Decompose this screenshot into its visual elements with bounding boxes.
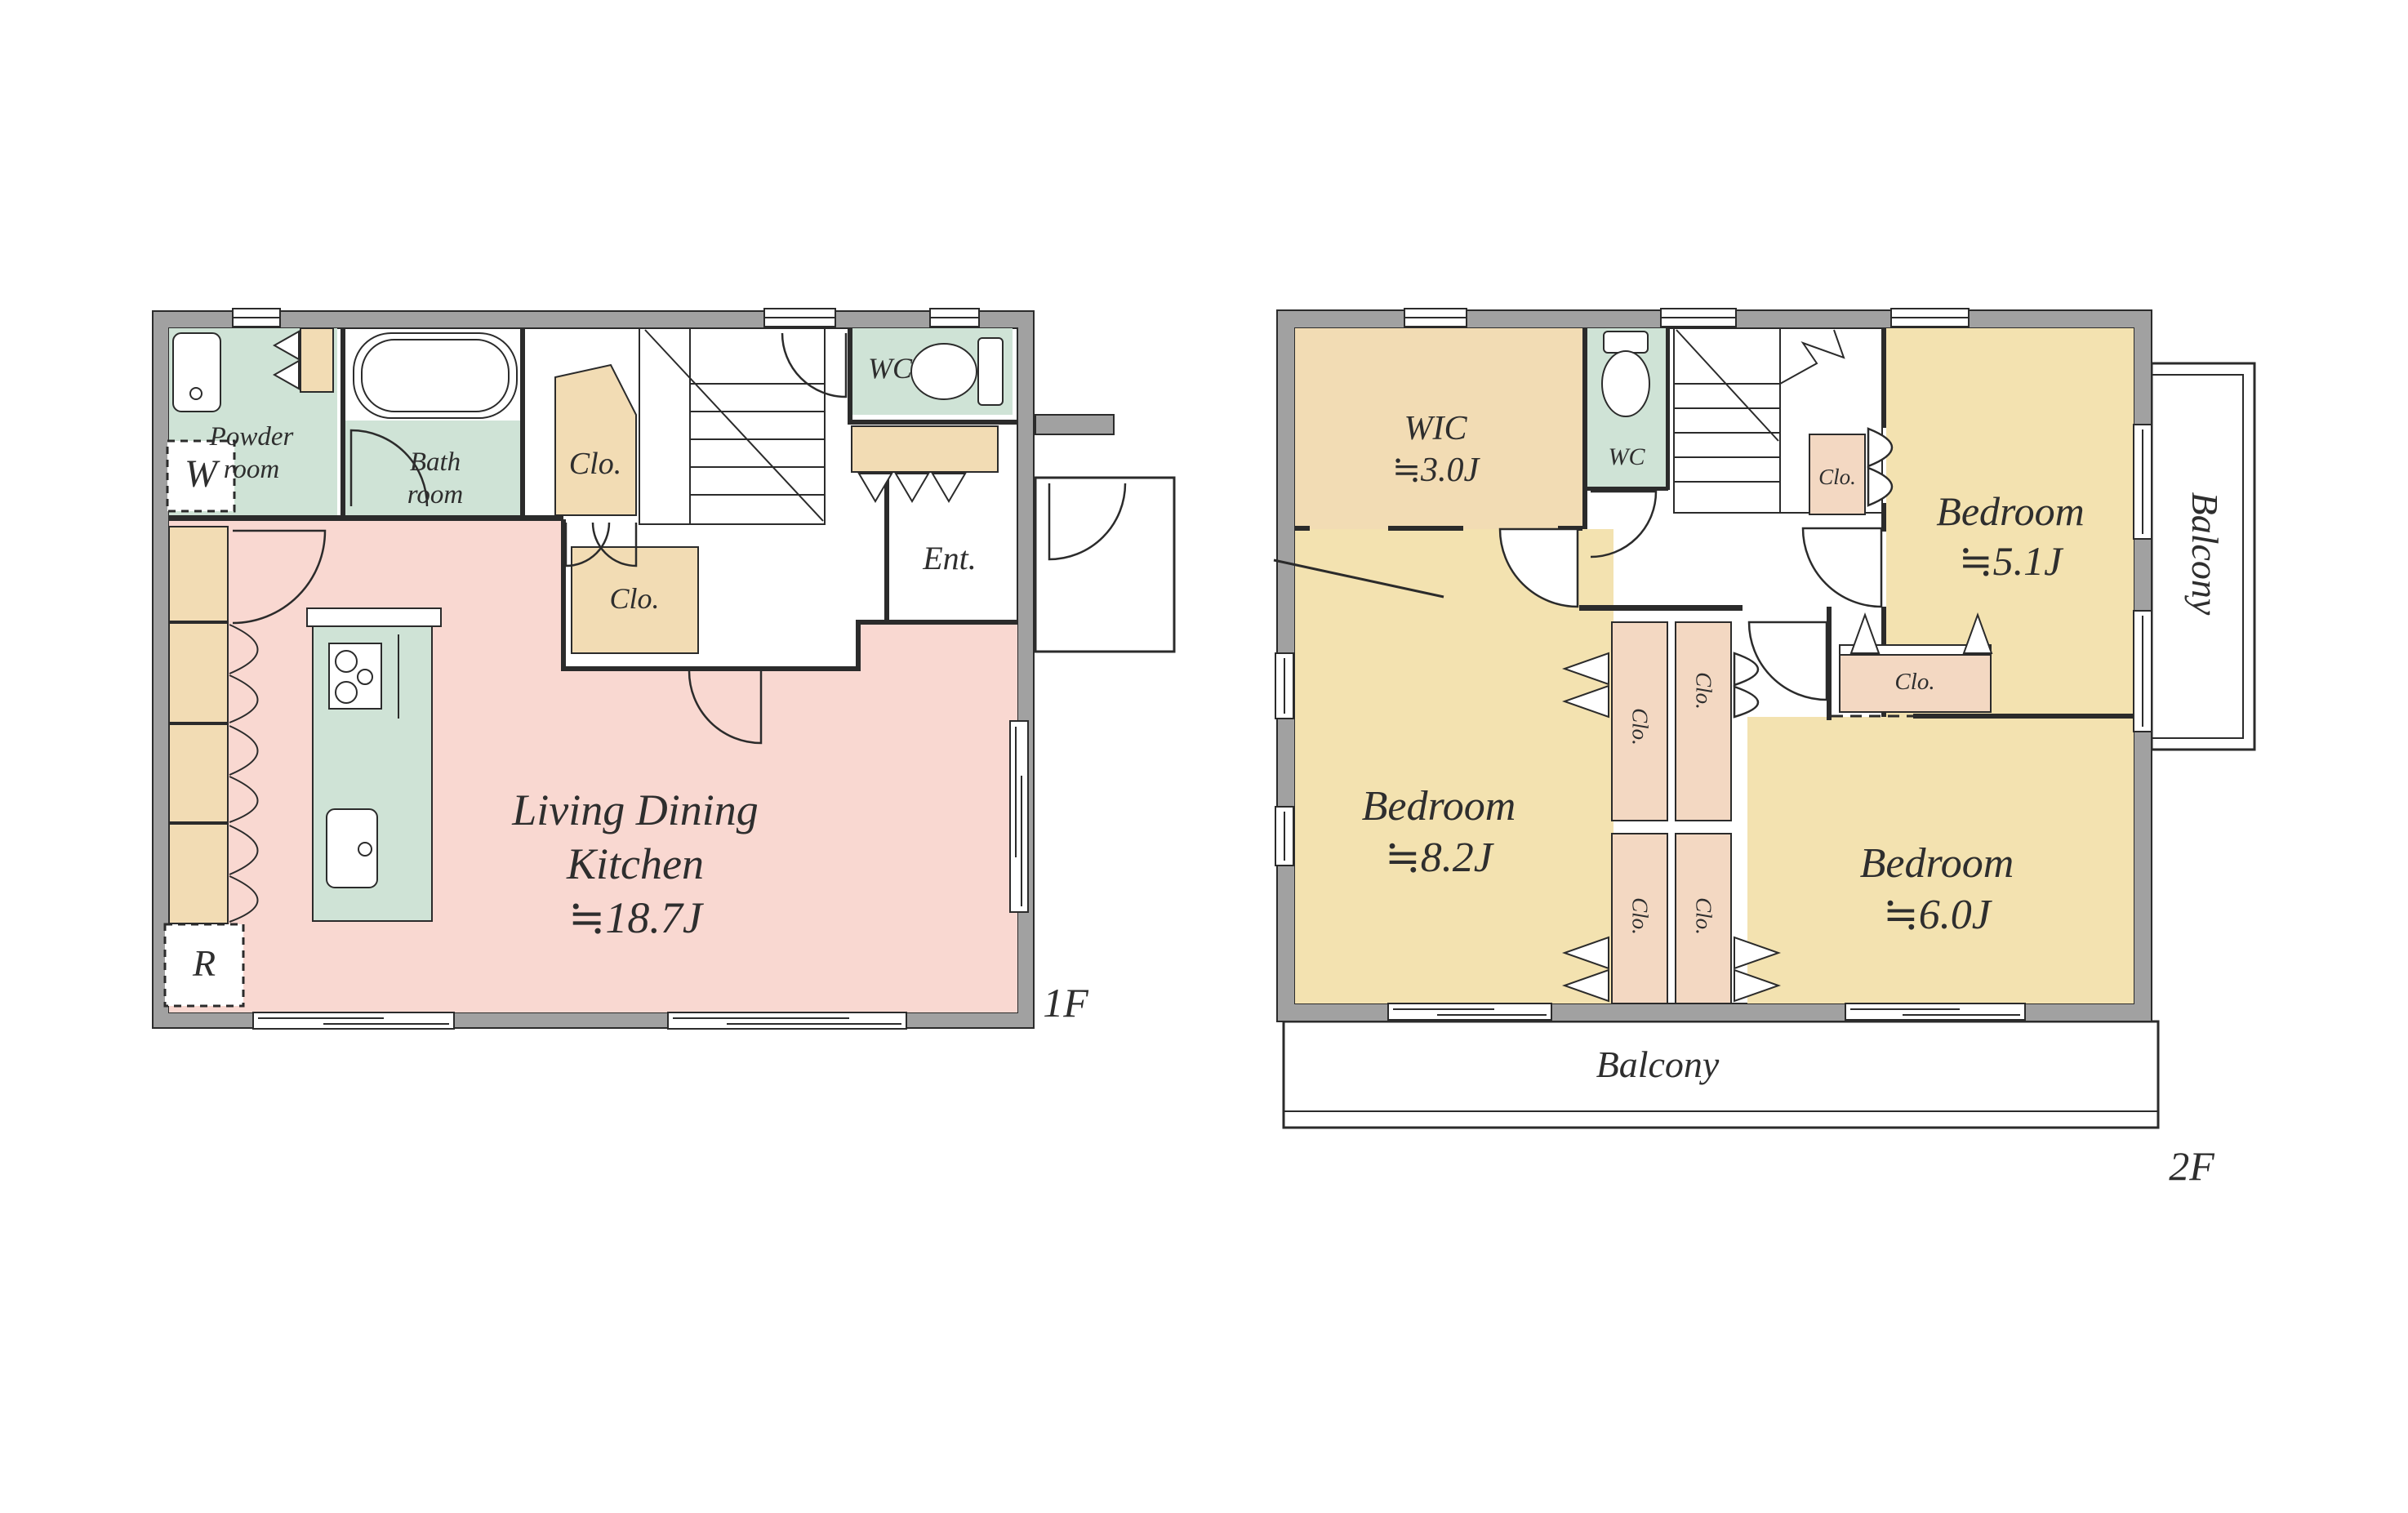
wic-line1: WIC bbox=[1392, 408, 1479, 450]
wall bbox=[848, 420, 1017, 425]
wic-size: ≒3.0J bbox=[1392, 450, 1479, 492]
wall bbox=[1388, 526, 1463, 531]
bedroom-6-0-size: ≒6.0J bbox=[1860, 889, 2014, 941]
bathtub-icon bbox=[354, 333, 517, 418]
sliding-window bbox=[1010, 721, 1028, 912]
kitchen-sink-icon bbox=[327, 809, 377, 888]
wall bbox=[856, 620, 1017, 625]
closet-strip-right-top-label: Clo. bbox=[1690, 672, 1717, 710]
washing-machine-label: W bbox=[185, 451, 217, 499]
bedroom-8-2-size: ≒8.2J bbox=[1362, 832, 1516, 883]
wall bbox=[520, 328, 525, 521]
entrance-porch bbox=[1035, 478, 1174, 652]
toilet-tank-icon bbox=[1604, 332, 1648, 353]
wall bbox=[169, 515, 563, 521]
ldk-line2: Kitchen bbox=[512, 838, 759, 892]
pantry-cabinet bbox=[169, 824, 228, 923]
balcony-bottom-label: Balcony bbox=[1596, 1042, 1720, 1088]
bedroom-5-1-size: ≒5.1J bbox=[1936, 536, 2084, 586]
powder-cabinet bbox=[300, 328, 333, 392]
wall bbox=[1579, 605, 1743, 611]
wc-label: WC bbox=[868, 351, 912, 387]
wall bbox=[1295, 526, 1310, 531]
wc2-label: WC bbox=[1609, 443, 1645, 473]
wall bbox=[848, 328, 852, 423]
bedroom-6-0-label: Bedroom ≒6.0J bbox=[1860, 838, 2014, 941]
floor-plan-canvas: Powder room Bath room WC Clo. Clo. Ent. … bbox=[0, 0, 2408, 1513]
bath-room-line2: room bbox=[407, 478, 463, 511]
toilet-tank-icon bbox=[978, 338, 1003, 405]
wall bbox=[341, 328, 345, 515]
floor2-label: 2F bbox=[2169, 1141, 2214, 1191]
shoe-cabinet bbox=[852, 426, 998, 472]
bedroom-5-1-line1: Bedroom bbox=[1936, 487, 2084, 536]
closet-strip-left-top-label: Clo. bbox=[1627, 708, 1654, 745]
sliding-window bbox=[1845, 1003, 2025, 1020]
powder-room-line1: Powder bbox=[210, 421, 294, 453]
pantry-cabinet bbox=[169, 623, 228, 723]
kitchen-counter-cap bbox=[307, 608, 441, 626]
wall bbox=[1582, 328, 1587, 529]
wall bbox=[884, 478, 889, 625]
wall bbox=[1666, 328, 1670, 490]
ldk-label: Living Dining Kitchen ≒18.7J bbox=[512, 784, 759, 946]
sliding-window bbox=[668, 1012, 906, 1029]
toilet-icon bbox=[911, 344, 977, 399]
closet-strip-left-bottom-label: Clo. bbox=[1627, 897, 1654, 935]
powder-room-label: Powder room bbox=[210, 421, 294, 487]
powder-room-line2: room bbox=[210, 453, 294, 486]
closet-lower-label: Clo. bbox=[609, 581, 659, 617]
floor1-label: 1F bbox=[1043, 978, 1088, 1028]
closet-by-stairs-label: Clo. bbox=[1818, 464, 1856, 491]
porch-wall-stub bbox=[1035, 415, 1114, 434]
sliding-window bbox=[253, 1012, 454, 1029]
toilet-icon bbox=[1602, 351, 1649, 416]
bedroom-5-1-label: Bedroom ≒5.1J bbox=[1936, 487, 2084, 586]
wall bbox=[856, 623, 861, 671]
closet-strip-right-bottom-label: Clo. bbox=[1690, 897, 1717, 935]
closet-bedroom-5-1-label: Clo. bbox=[1894, 668, 1934, 696]
sliding-window bbox=[1388, 1003, 1551, 1020]
refrigerator-label: R bbox=[193, 941, 216, 986]
closet-upper-label: Clo. bbox=[569, 445, 621, 483]
balcony-right-label: Balcony bbox=[2182, 492, 2228, 616]
bath-room-line1: Bath bbox=[407, 446, 463, 478]
wall bbox=[1585, 487, 1668, 491]
bedroom-8-2-label: Bedroom ≒8.2J bbox=[1362, 781, 1516, 884]
wic-label: WIC ≒3.0J bbox=[1392, 408, 1479, 492]
entrance-label: Ent. bbox=[923, 539, 977, 579]
bedroom-8-2-line1: Bedroom bbox=[1362, 781, 1516, 832]
wall bbox=[1913, 714, 2134, 719]
ldk-line1: Living Dining bbox=[512, 784, 759, 838]
pantry-cabinet bbox=[169, 724, 228, 822]
bedroom-6-0-line1: Bedroom bbox=[1860, 838, 2014, 889]
closet-strip-right-top bbox=[1676, 622, 1731, 821]
pantry-cabinet bbox=[169, 527, 228, 621]
wall bbox=[561, 666, 861, 671]
bath-room-label: Bath room bbox=[407, 446, 463, 512]
ldk-size: ≒18.7J bbox=[512, 892, 759, 946]
